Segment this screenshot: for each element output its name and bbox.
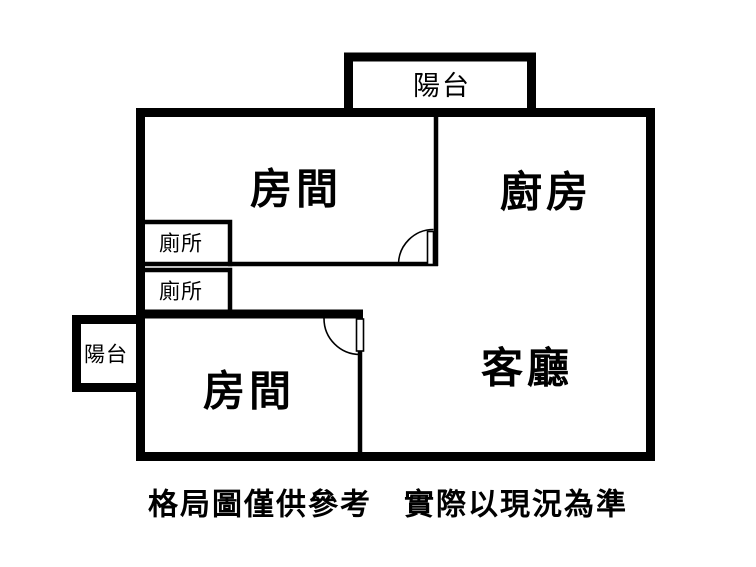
door-leaf-bedroom-top [428, 232, 434, 265]
floor-plan-drawing: 陽台 陽台 廁所 廁所 [0, 0, 756, 567]
balcony-top: 陽台 [349, 57, 532, 112]
toilet-upper-label: 廁所 [159, 233, 203, 256]
disclaimer-caption: 格局圖僅供參考 實際以現況為準 [148, 488, 628, 522]
bedroom-bottom-label: 房間 [203, 368, 295, 415]
door-leaf-bedroom-bottom [357, 319, 364, 351]
kitchen-label: 廚房 [500, 169, 592, 216]
bedroom-top-label: 房間 [250, 166, 342, 213]
balcony-left-label: 陽台 [84, 344, 128, 367]
toilet-lower-label: 廁所 [159, 281, 203, 304]
floor-plan-image: 陽台 陽台 廁所 廁所 [0, 0, 756, 567]
balcony-left: 陽台 [77, 320, 141, 388]
living-room-label: 客廳 [481, 345, 573, 392]
balcony-top-label: 陽台 [413, 71, 471, 101]
